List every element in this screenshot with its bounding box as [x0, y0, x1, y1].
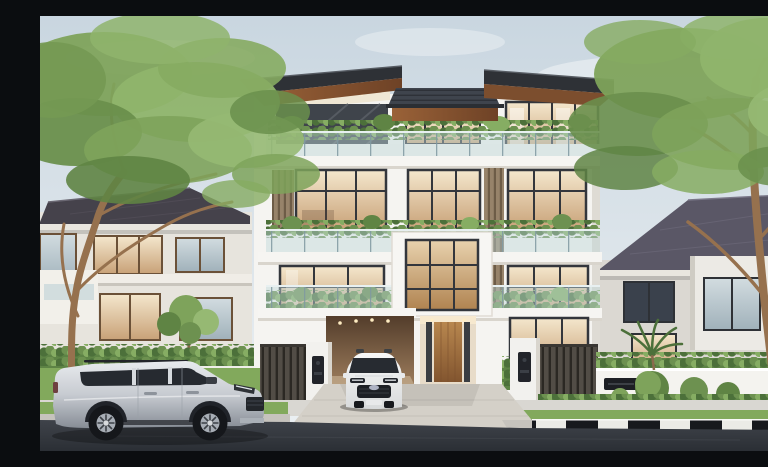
- entrance: [418, 316, 478, 390]
- drl-strip: [352, 380, 363, 381]
- letterbox-slot: [608, 383, 634, 385]
- foliage-cluster: [230, 90, 310, 134]
- brand-emblem: [369, 385, 379, 390]
- windshield: [349, 358, 399, 373]
- downlight: [370, 318, 374, 322]
- downlight: [386, 319, 390, 323]
- tree-foliage: [568, 16, 768, 194]
- hub-cap: [103, 420, 108, 425]
- downlight: [463, 319, 466, 322]
- hub-cap: [207, 420, 212, 425]
- bush: [373, 114, 395, 130]
- mullion: [453, 240, 455, 310]
- wheel: [354, 401, 364, 408]
- box-shade: [690, 256, 695, 350]
- grille: [246, 397, 264, 411]
- drl-strip: [385, 380, 396, 381]
- front-bumper-lip: [240, 418, 264, 423]
- downlight: [431, 319, 434, 322]
- wall-top-hedge: [596, 352, 768, 370]
- bay-window: [406, 240, 478, 310]
- intercom-speaker: [314, 372, 322, 375]
- intercom-speaker: [520, 370, 529, 373]
- transom: [296, 190, 386, 192]
- right-slat-fence: [540, 346, 598, 396]
- property-photo: Modern four-storey white villa with dark…: [40, 16, 768, 451]
- bush: [363, 215, 381, 229]
- foliage-cluster: [584, 20, 696, 64]
- fence-rail: [540, 344, 598, 347]
- curb-top-edge: [532, 419, 768, 421]
- roof-rail: [384, 349, 392, 353]
- mullion: [731, 278, 733, 330]
- left-slat-fence: [260, 346, 308, 408]
- foliage-cluster: [66, 156, 190, 204]
- tree-foliage: [157, 312, 181, 336]
- mullion: [199, 238, 201, 272]
- downlight: [338, 321, 342, 325]
- tiled-roof: [388, 88, 500, 106]
- eaves-fascia: [40, 224, 252, 230]
- side-mirror: [206, 377, 217, 384]
- handrail: [266, 131, 600, 133]
- c-pillar: [168, 367, 172, 384]
- mullion: [129, 294, 131, 340]
- car-shadow: [52, 427, 268, 445]
- mullion: [648, 282, 650, 322]
- downlight: [354, 319, 358, 323]
- intercom-camera: [523, 358, 527, 362]
- license-plate: [366, 400, 382, 405]
- roof-rail: [356, 349, 364, 353]
- rear-wheel: [89, 406, 124, 441]
- side-mirror: [343, 373, 350, 378]
- handrail: [266, 229, 600, 231]
- bush: [461, 217, 479, 231]
- intercom-panel: [312, 356, 324, 384]
- bush: [552, 214, 572, 230]
- sidelight: [426, 322, 432, 382]
- intercom-panel: [518, 352, 531, 382]
- sidelight: [464, 322, 470, 382]
- central-protruding-bay: [392, 232, 492, 316]
- tree-foliage: [179, 322, 201, 344]
- transom: [406, 264, 478, 266]
- balustrade-posts: [266, 132, 600, 158]
- intercom-camera: [316, 361, 320, 365]
- eave-edge: [386, 104, 504, 108]
- tail-light: [53, 382, 58, 393]
- front-wheel: [193, 406, 228, 441]
- scene-svg: Modern four-storey white villa with dark…: [40, 16, 768, 451]
- foliage-wisp: [202, 180, 270, 208]
- transom: [408, 190, 480, 192]
- transom: [508, 190, 586, 192]
- mullion: [429, 240, 431, 310]
- window: [94, 236, 162, 274]
- cloud: [355, 28, 505, 56]
- door-handle: [186, 391, 199, 394]
- wall-cap: [596, 368, 768, 371]
- b-pillar: [132, 368, 136, 385]
- fence-rail: [260, 344, 308, 347]
- side-mirror: [398, 373, 405, 378]
- wood-band: [392, 108, 498, 121]
- door-handle: [144, 392, 157, 395]
- topiary-highlight: [635, 371, 661, 397]
- wheel: [384, 401, 394, 408]
- transom: [406, 288, 478, 290]
